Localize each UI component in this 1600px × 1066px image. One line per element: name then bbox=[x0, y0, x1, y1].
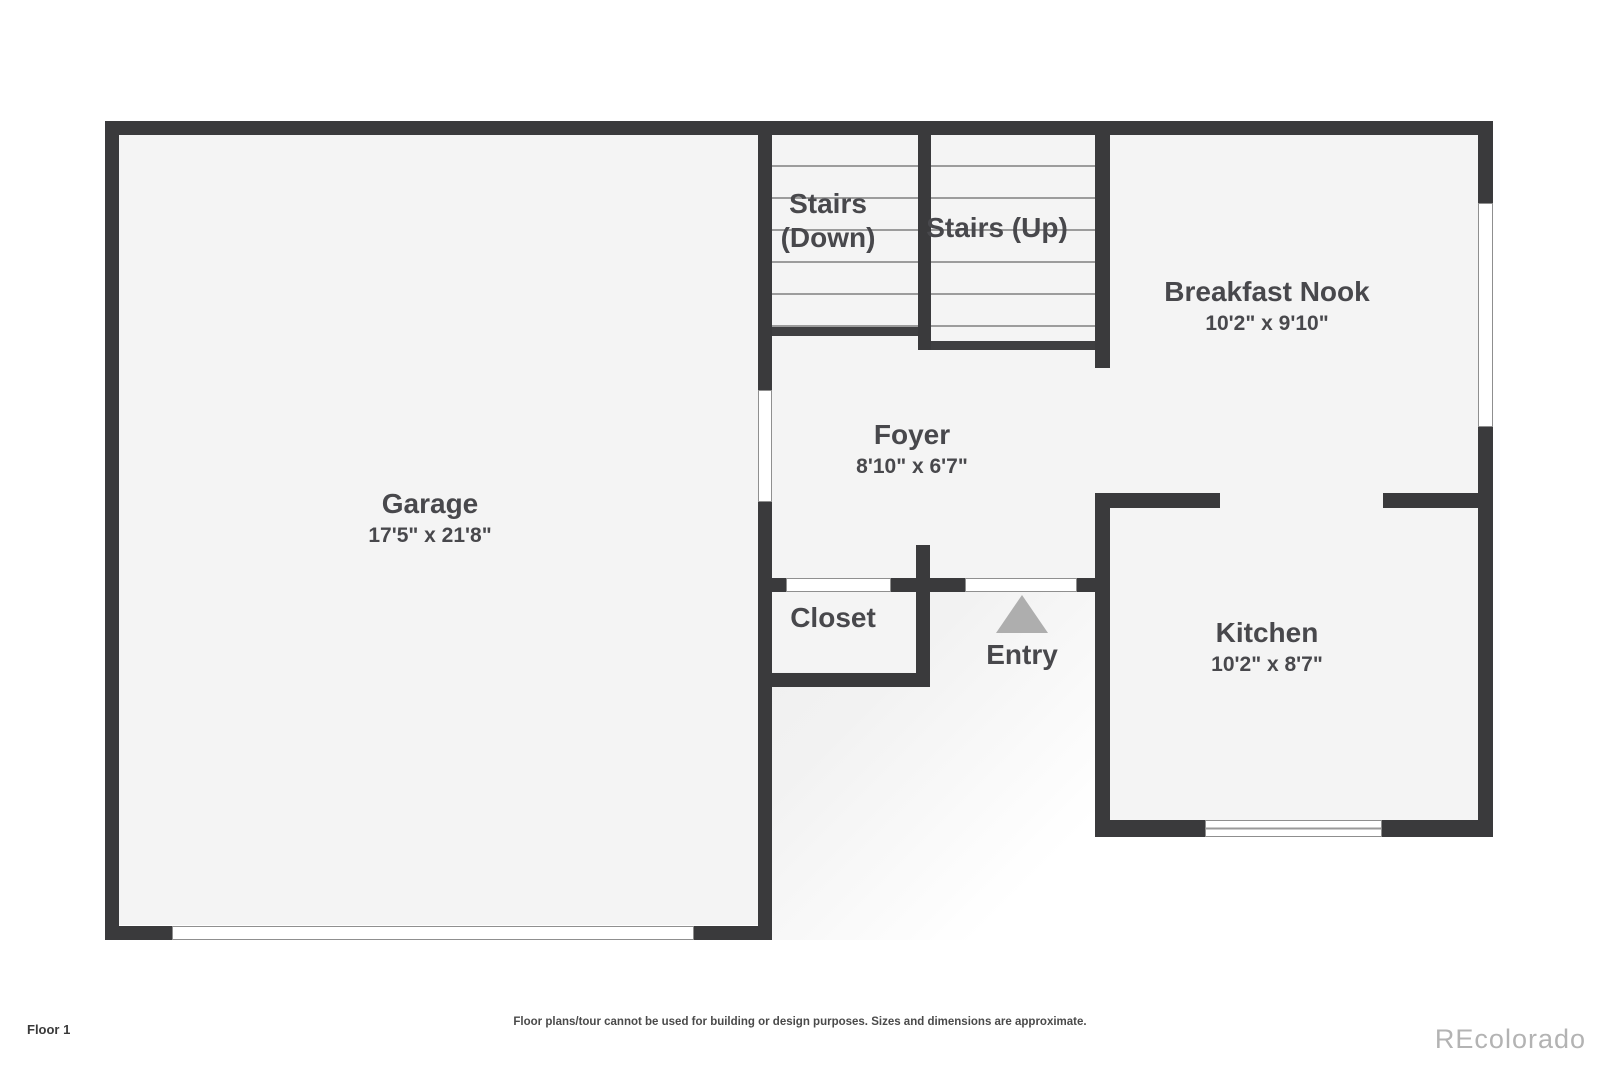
watermark-recolorado: REcolorado bbox=[1435, 1024, 1586, 1055]
wall-garage-right bbox=[758, 121, 772, 940]
breakfast-nook-window bbox=[1478, 203, 1493, 427]
room-entry: Entry bbox=[986, 638, 1058, 672]
room-stairs-up: Stairs (Up) bbox=[926, 211, 1068, 245]
front-door-opening bbox=[965, 578, 1077, 592]
room-foyer-dims: 8'10" x 6'7" bbox=[856, 452, 968, 482]
wall-outer-left bbox=[105, 121, 119, 940]
room-stairs-down: Stairs (Down) bbox=[781, 187, 876, 255]
garage-foyer-opening bbox=[758, 390, 772, 502]
wall-stairs-up-bottom bbox=[931, 341, 1110, 350]
room-breakfast-nook: Breakfast Nook 10'2" x 9'10" bbox=[1164, 275, 1369, 339]
room-closet-name: Closet bbox=[790, 601, 876, 635]
wall-entry-seg1 bbox=[758, 578, 786, 592]
room-kitchen-dims: 10'2" x 8'7" bbox=[1211, 650, 1323, 680]
room-stairs-down-line1: Stairs bbox=[781, 187, 876, 221]
wall-stairs-down-bottom bbox=[772, 327, 918, 336]
room-garage-name: Garage bbox=[368, 487, 491, 521]
kitchen-window bbox=[1205, 820, 1382, 837]
room-closet: Closet bbox=[790, 601, 876, 635]
wall-kitchen-top-right-stub bbox=[1383, 493, 1493, 508]
wall-closet-bottom bbox=[758, 673, 930, 687]
room-kitchen: Kitchen 10'2" x 8'7" bbox=[1211, 616, 1323, 680]
room-foyer-name: Foyer bbox=[856, 418, 968, 452]
wall-outer-top bbox=[105, 121, 1493, 135]
room-breakfast-nook-dims: 10'2" x 9'10" bbox=[1164, 309, 1369, 339]
room-garage: Garage 17'5" x 21'8" bbox=[368, 487, 491, 551]
wall-kitchen-top-left-stub bbox=[1095, 493, 1220, 508]
room-breakfast-nook-name: Breakfast Nook bbox=[1164, 275, 1369, 309]
wall-kitchen-left bbox=[1095, 493, 1110, 837]
room-garage-dims: 17'5" x 21'8" bbox=[368, 521, 491, 551]
closet-door-opening bbox=[786, 578, 891, 592]
room-entry-name: Entry bbox=[986, 638, 1058, 672]
floor-plan: Garage 17'5" x 21'8" Stairs (Down) Stair… bbox=[0, 0, 1600, 1066]
wall-closet-right bbox=[916, 545, 930, 687]
room-stairs-down-line2: (Down) bbox=[781, 221, 876, 255]
room-kitchen-name: Kitchen bbox=[1211, 616, 1323, 650]
entry-arrow-icon bbox=[996, 595, 1048, 633]
floor-kitchen-doorway bbox=[1220, 493, 1383, 508]
garage-door-opening bbox=[172, 926, 694, 940]
disclaimer-text: Floor plans/tour cannot be used for buil… bbox=[0, 1016, 1600, 1028]
floor-passage-nook bbox=[1095, 368, 1110, 493]
floor-nook-kitchen bbox=[1110, 135, 1478, 820]
wall-foyer-nook-upper bbox=[1095, 121, 1110, 368]
room-foyer: Foyer 8'10" x 6'7" bbox=[856, 418, 968, 482]
room-stairs-up-name: Stairs (Up) bbox=[926, 211, 1068, 245]
wall-entry-seg3 bbox=[1077, 578, 1110, 592]
